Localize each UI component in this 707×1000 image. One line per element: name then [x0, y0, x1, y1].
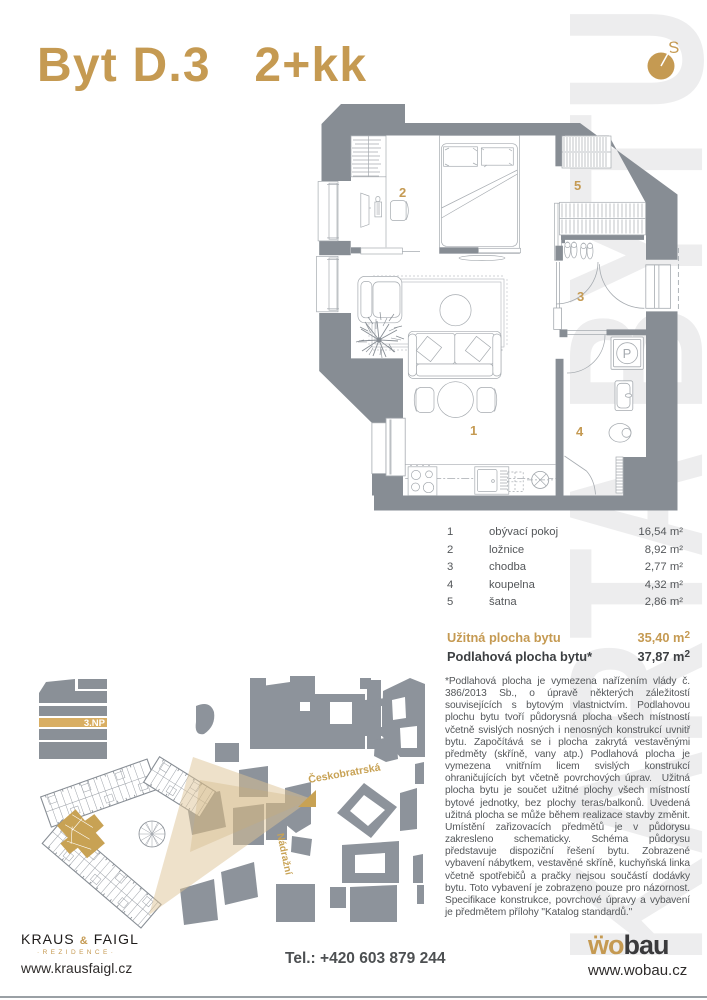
svg-text:Českobratrská: Českobratrská: [307, 760, 381, 785]
svg-text:P: P: [623, 346, 632, 361]
svg-text:1: 1: [470, 423, 477, 438]
svg-text:4: 4: [576, 424, 584, 439]
svg-text:S: S: [668, 38, 679, 57]
svg-text:Nádražní: Nádražní: [274, 832, 294, 877]
svg-text:3: 3: [577, 289, 584, 304]
svg-text:2: 2: [399, 185, 406, 200]
svg-text:5: 5: [574, 178, 581, 193]
